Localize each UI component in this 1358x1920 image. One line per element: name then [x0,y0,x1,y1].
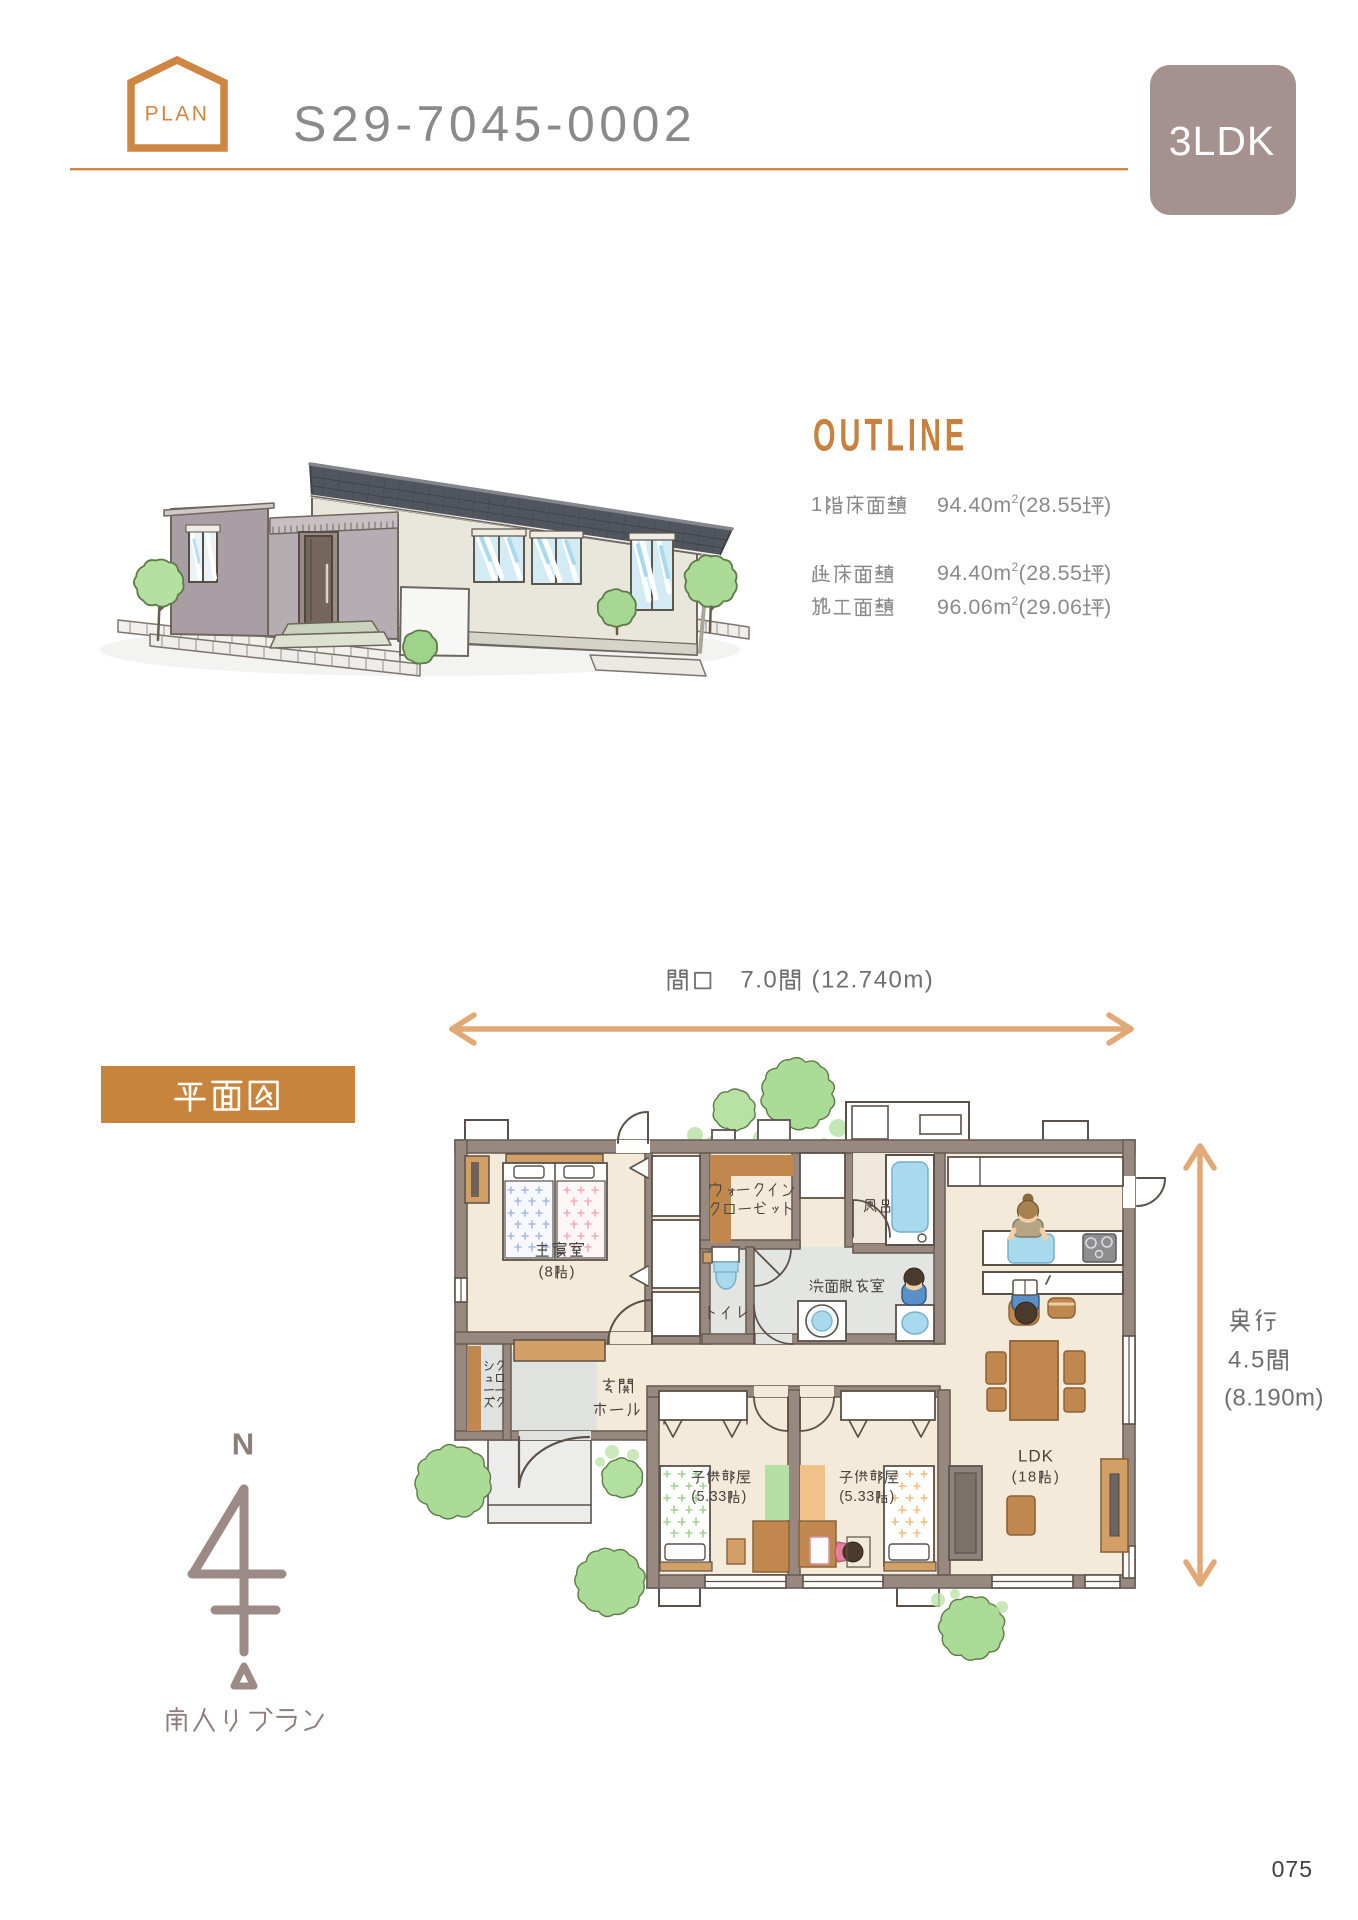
svg-text:8: 8 [1039,493,1051,517]
svg-text:9: 9 [937,493,949,517]
svg-text:0: 0 [968,595,980,619]
svg-text:7: 7 [740,967,753,994]
svg-text:8: 8 [545,1264,553,1281]
svg-text:.: . [1051,595,1057,619]
svg-text:m: m [993,561,1011,585]
svg-text:): ) [1104,493,1111,517]
svg-text:8: 8 [1028,1469,1036,1486]
svg-text:4: 4 [874,967,887,994]
svg-text:): ) [925,967,933,994]
svg-text:2: 2 [1012,560,1019,574]
svg-text:L: L [161,103,173,126]
svg-text:3: 3 [710,1489,718,1505]
svg-text:5: 5 [697,1489,705,1505]
svg-text:4: 4 [950,561,962,585]
svg-text:0: 0 [1281,1385,1294,1412]
svg-text:3: 3 [858,1489,866,1505]
svg-text:.: . [1243,1347,1250,1374]
svg-text:2: 2 [1012,594,1019,608]
svg-text:2: 2 [836,967,849,994]
svg-text:1: 1 [821,967,834,994]
svg-text:LDK: LDK [1018,1447,1054,1466]
svg-text:6: 6 [1070,595,1082,619]
svg-text:6: 6 [981,595,993,619]
svg-text:9: 9 [1267,1385,1280,1412]
svg-text:.: . [1246,1385,1253,1412]
svg-text:1: 1 [811,494,822,516]
svg-text:.: . [962,493,968,517]
svg-text:(: ( [1224,1385,1232,1412]
svg-text:5: 5 [1070,493,1082,517]
svg-text:(: ( [1012,1469,1017,1486]
svg-text:2: 2 [1026,595,1038,619]
svg-text:9: 9 [1039,595,1051,619]
svg-text:1: 1 [1254,1385,1267,1412]
svg-text:P: P [145,103,159,126]
svg-text:(: ( [812,967,820,994]
svg-text:0: 0 [981,493,993,517]
svg-text:OUTLINE: OUTLINE [813,411,968,461]
svg-text:4: 4 [1228,1347,1241,1374]
svg-text:2: 2 [1026,561,1038,585]
svg-text:.: . [962,595,968,619]
svg-text:.: . [705,1489,709,1505]
svg-text:4: 4 [968,561,980,585]
svg-text:): ) [570,1264,575,1281]
svg-text:.: . [853,1489,857,1505]
svg-text:5: 5 [1058,561,1070,585]
svg-text:): ) [1316,1385,1324,1412]
svg-text:5: 5 [1058,493,1070,517]
svg-text:4: 4 [950,493,962,517]
svg-text:3: 3 [718,1489,726,1505]
svg-text:.: . [755,967,762,994]
svg-text:): ) [890,1489,895,1505]
svg-text:075: 075 [1272,1856,1313,1882]
svg-text:m: m [993,493,1011,517]
svg-text:0: 0 [981,561,993,585]
svg-text:0: 0 [889,967,902,994]
svg-text:2: 2 [1026,493,1038,517]
svg-text:): ) [1104,595,1111,619]
svg-text:.: . [851,967,858,994]
svg-text:8: 8 [1233,1385,1246,1412]
svg-text:): ) [742,1489,747,1505]
svg-text:0: 0 [763,967,776,994]
svg-text:N: N [192,103,207,126]
svg-text:7: 7 [859,967,872,994]
svg-text:m: m [993,595,1011,619]
svg-text:9: 9 [937,595,949,619]
svg-text:): ) [1054,1469,1059,1486]
svg-text:3LDK: 3LDK [1169,118,1276,164]
svg-text:.: . [962,561,968,585]
svg-text:.: . [1051,561,1057,585]
svg-text:S29-7045-0002: S29-7045-0002 [293,96,696,152]
svg-text:6: 6 [950,595,962,619]
svg-text:.: . [1051,493,1057,517]
svg-text:N: N [232,1427,254,1462]
svg-text:1: 1 [1018,1469,1026,1486]
svg-text:): ) [1104,561,1111,585]
svg-text:A: A [175,103,189,126]
svg-text:8: 8 [1039,561,1051,585]
svg-text:(: ( [539,1264,544,1281]
svg-text:3: 3 [866,1489,874,1505]
svg-text:4: 4 [968,493,980,517]
svg-text:(: ( [839,1489,844,1505]
svg-text:(: ( [691,1489,696,1505]
svg-text:m: m [903,967,923,994]
svg-text:5: 5 [1251,1347,1264,1374]
svg-text:9: 9 [937,561,949,585]
svg-text:5: 5 [845,1489,853,1505]
svg-text:2: 2 [1012,492,1019,506]
svg-text:5: 5 [1070,561,1082,585]
svg-text:0: 0 [1058,595,1070,619]
svg-text:m: m [1295,1385,1315,1412]
